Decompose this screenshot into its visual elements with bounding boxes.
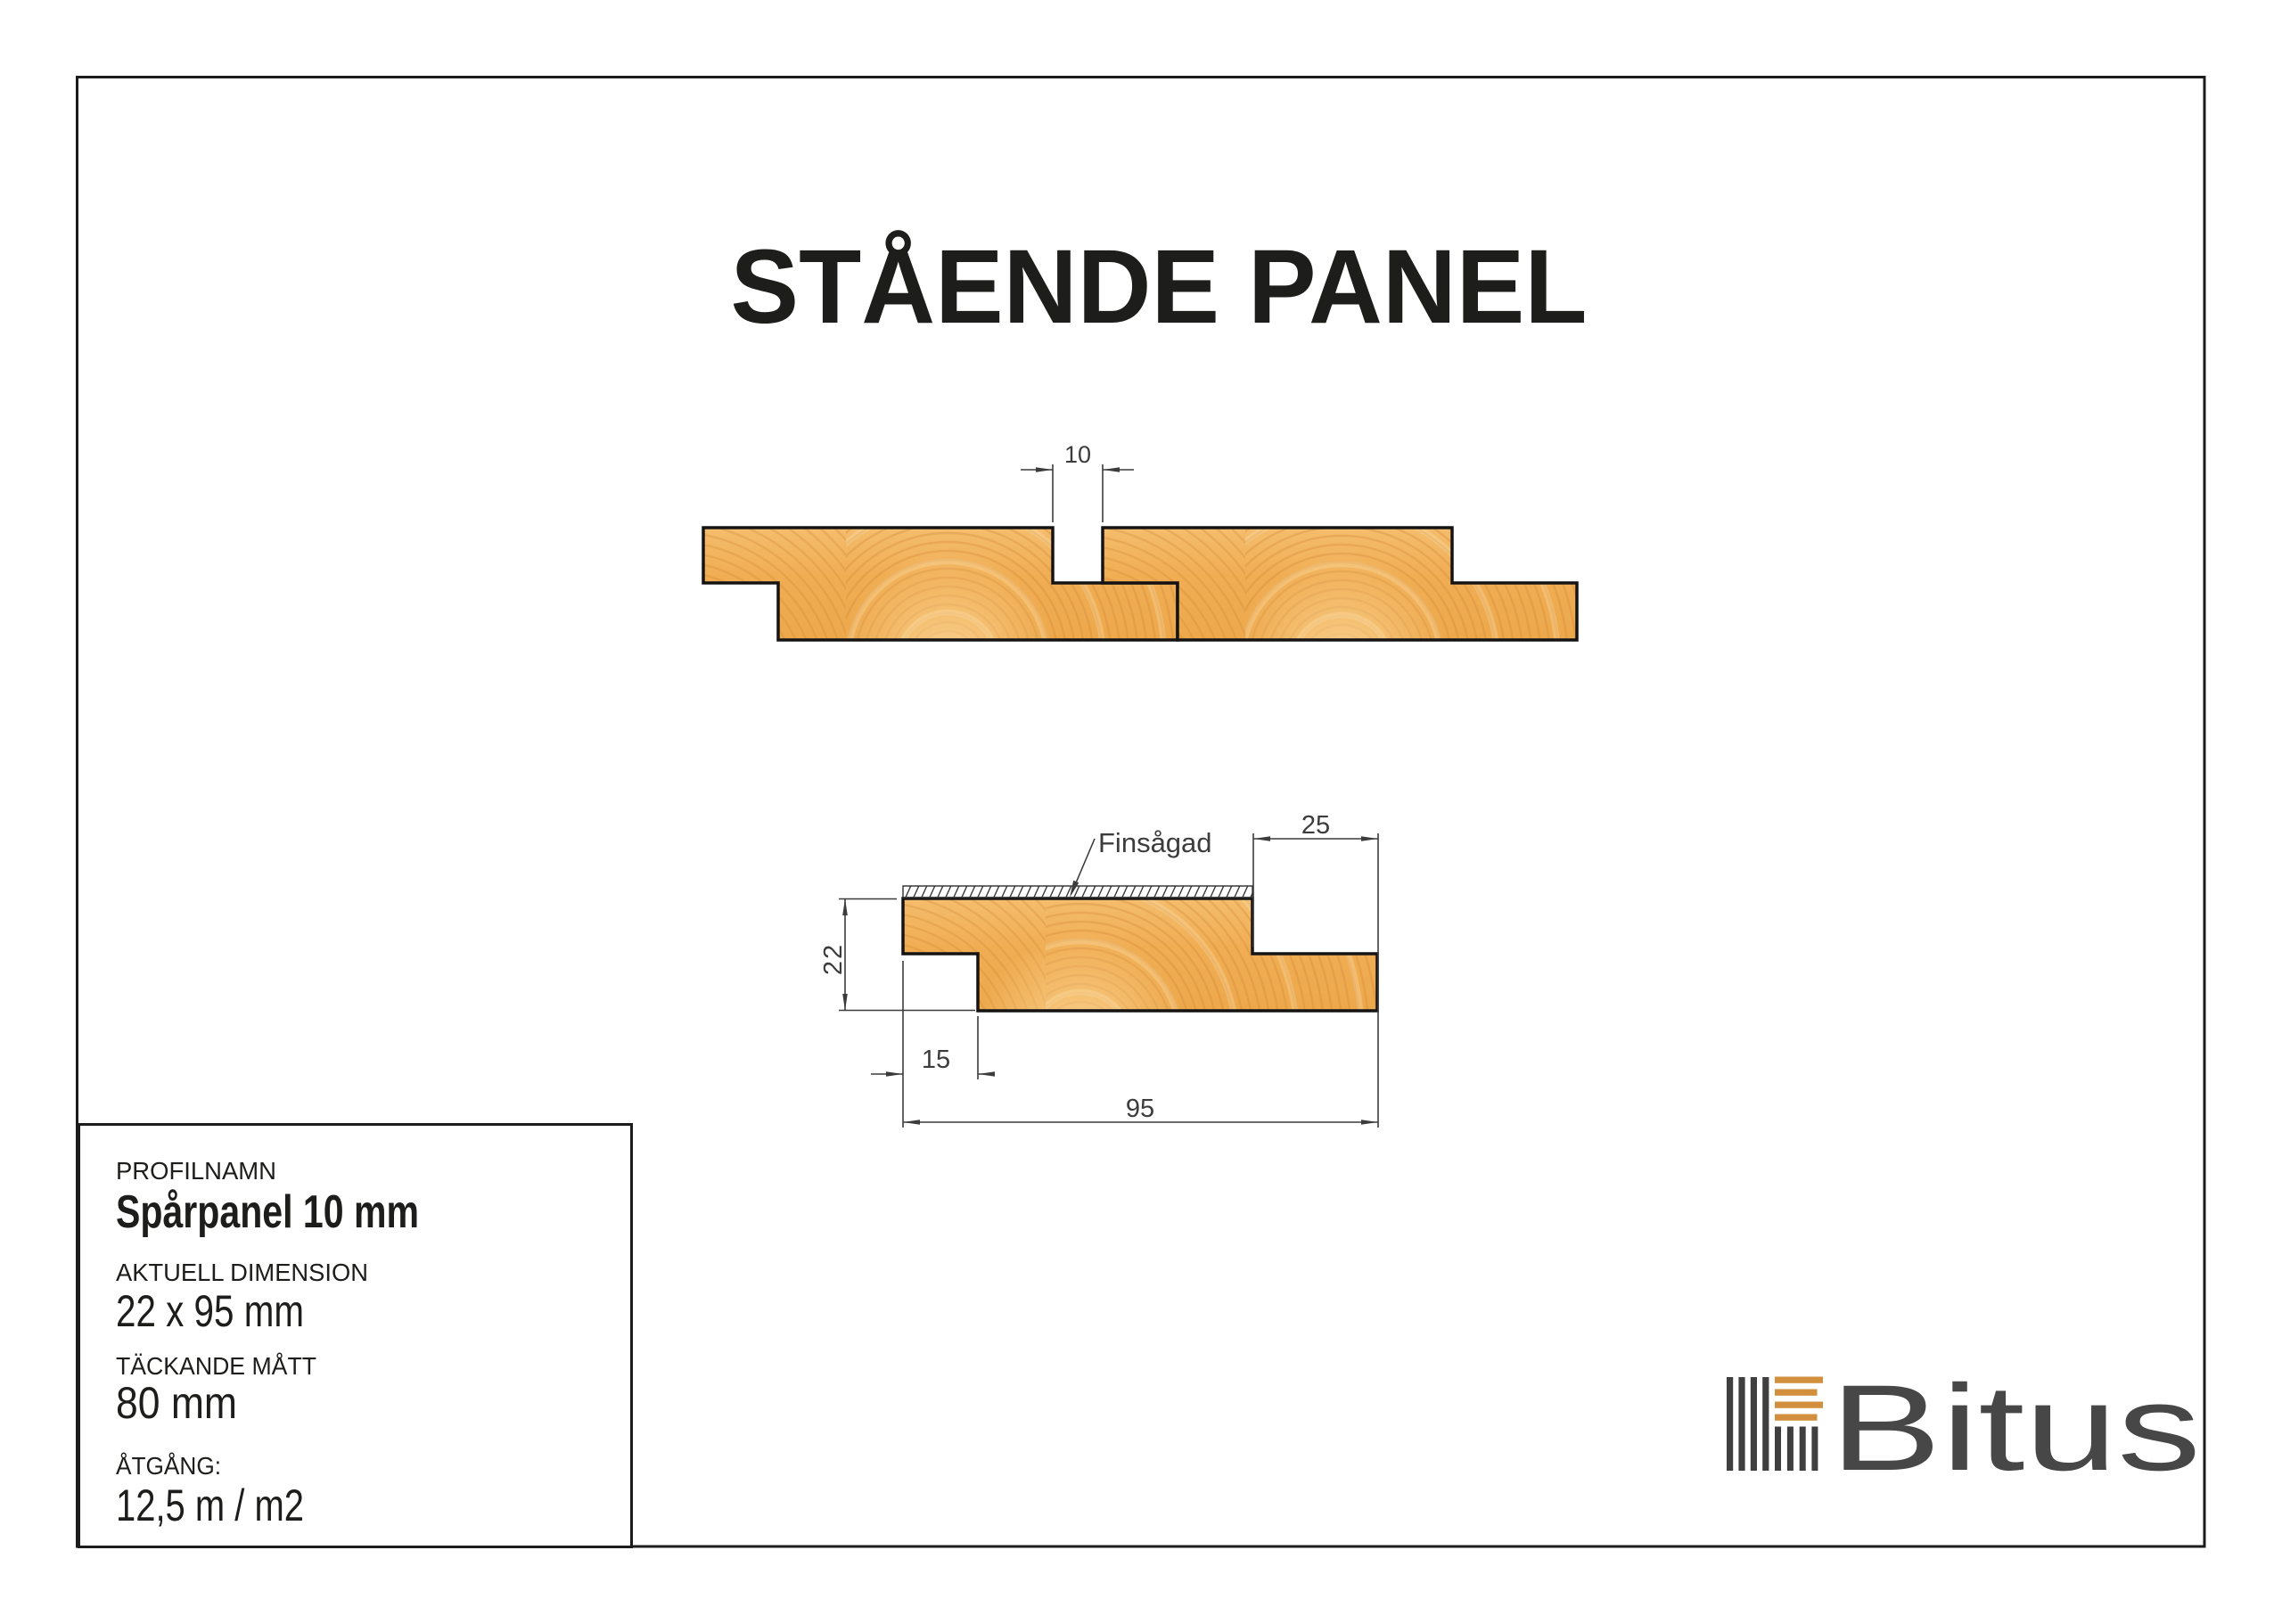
svg-text:95: 95 [1126,1095,1154,1123]
svg-text:10: 10 [1064,441,1091,468]
svg-text:STÅENDE PANEL: STÅENDE PANEL [731,228,1588,346]
svg-text:25: 25 [1301,811,1330,840]
svg-text:22 x 95 mm: 22 x 95 mm [116,1286,304,1336]
svg-text:AKTUELL DIMENSION: AKTUELL DIMENSION [116,1259,368,1286]
svg-text:Spårpanel 10 mm: Spårpanel 10 mm [116,1186,419,1238]
svg-text:80 mm: 80 mm [116,1378,237,1428]
svg-text:Finsågad: Finsågad [1098,827,1212,858]
svg-text:PROFILNAMN: PROFILNAMN [116,1157,276,1185]
svg-text:Bitus: Bitus [1830,1360,2201,1497]
svg-text:ÅTGÅNG:: ÅTGÅNG: [116,1452,221,1480]
svg-text:TÄCKANDE MÅTT: TÄCKANDE MÅTT [116,1352,316,1380]
svg-text:12,5 m / m2: 12,5 m / m2 [116,1480,304,1530]
svg-text:22: 22 [819,943,848,975]
svg-text:15: 15 [922,1046,950,1074]
